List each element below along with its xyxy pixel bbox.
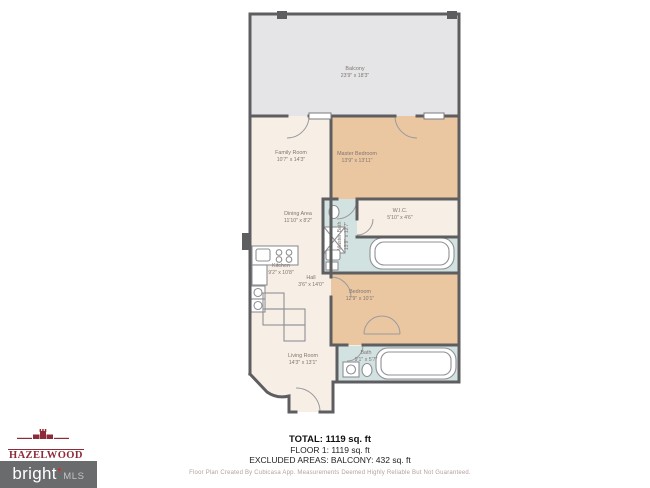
bright-wordmark: bright: [12, 465, 56, 482]
floor-plan-page: Balcony 23'9" x 18'3" Family Room 10'7" …: [0, 0, 650, 488]
label-master-bedroom-name: Master Bedroom: [337, 151, 377, 157]
label-hall-dims: 3'6" x 14'0": [298, 282, 324, 288]
label-wic-dims: 5'10" x 4'6": [387, 215, 413, 221]
label-bath-dims: 9'1" x 5'7": [355, 357, 378, 363]
label-master-bedroom-dims: 13'9" x 13'11": [342, 158, 373, 164]
floor-plan: Balcony 23'9" x 18'3" Family Room 10'7" …: [0, 0, 650, 420]
balcony-post: [447, 11, 457, 19]
wall-column: [242, 233, 251, 250]
label-wic-name: W.I.C.: [393, 208, 408, 214]
label-bedroom-dims: 12'9" x 10'1": [346, 296, 375, 302]
label-kitchen-name: Kitchen: [272, 263, 290, 269]
area-summary: TOTAL: 1119 sq. ft FLOOR 1: 1119 sq. ft …: [0, 435, 650, 476]
balcony-post: [277, 11, 287, 19]
label-hall-name: Hall: [306, 275, 315, 281]
mls-wordmark: MLS: [63, 471, 84, 482]
label-kitchen-dims: 9'2" x 10'8": [268, 270, 294, 276]
room-balcony: [250, 14, 459, 116]
red-dot-icon: [58, 468, 62, 472]
label-living-room-dims: 14'3" x 13'1": [289, 360, 318, 366]
label-balcony-dims: 23'9" x 18'3": [341, 73, 370, 79]
label-master-bath-name: Master Bath: [337, 221, 343, 250]
label-balcony-name: Balcony: [345, 66, 364, 72]
label-family-room-name: Family Room: [275, 150, 307, 156]
label-living-room-name: Living Room: [288, 353, 318, 359]
label-dining-area-dims: 11'10" x 8'2": [284, 218, 312, 224]
building-icon: [15, 429, 71, 440]
disclaimer-text: Floor Plan Created By Cubicasa App. Meas…: [0, 470, 650, 476]
label-bath-name: Bath: [360, 350, 371, 356]
label-bedroom-name: Bedroom: [349, 289, 371, 295]
label-dining-area-name: Dining Area: [284, 211, 312, 217]
excluded-area-text: EXCLUDED AREAS: BALCONY: 432 sq. ft: [0, 456, 650, 466]
label-family-room-dims: 10'7" x 14'3": [277, 157, 306, 163]
label-master-bath-dims: 13'9" x 12'7": [344, 222, 350, 251]
bright-mls-logo: bright MLS: [0, 461, 97, 488]
